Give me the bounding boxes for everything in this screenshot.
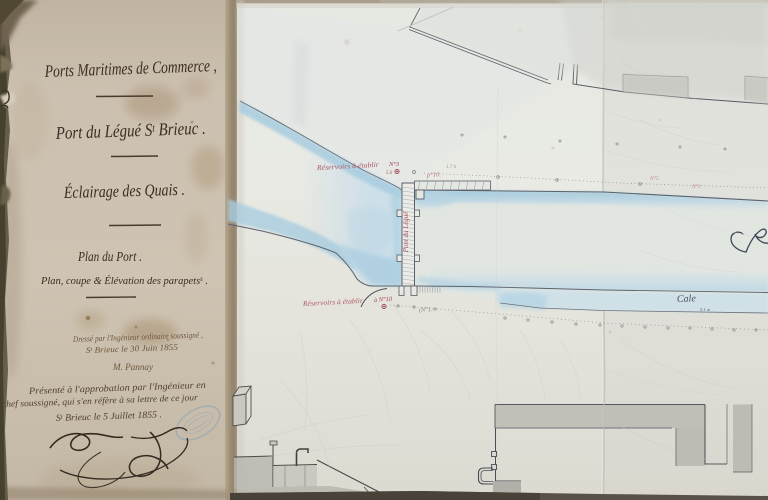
svg-text:Plan, coupe & Élévation des pa: Plan, coupe & Élévation des parapetss . xyxy=(40,275,208,287)
svg-text:N°5: N°5 xyxy=(649,175,659,182)
svg-text:N°3: N°3 xyxy=(388,161,400,168)
svg-text:M. Pannay: M. Pannay xyxy=(112,362,153,372)
svg-text:N°2: N°2 xyxy=(691,183,701,190)
svg-text:(N°1.: (N°1. xyxy=(419,306,434,314)
svg-text:5.1 m: 5.1 m xyxy=(700,307,711,312)
svg-text:Éclairage des Quais .: Éclairage des Quais . xyxy=(63,180,185,202)
svg-text:Plan du Port .: Plan du Port . xyxy=(77,250,142,265)
svg-text:Cale: Cale xyxy=(677,293,697,305)
svg-text:1.7 h: 1.7 h xyxy=(446,165,457,170)
svg-text:Pont du Légué: Pont du Légué xyxy=(402,211,410,254)
svg-text:p°10.: p°10. xyxy=(426,171,442,179)
svg-text:5.0: 5.0 xyxy=(386,171,393,176)
